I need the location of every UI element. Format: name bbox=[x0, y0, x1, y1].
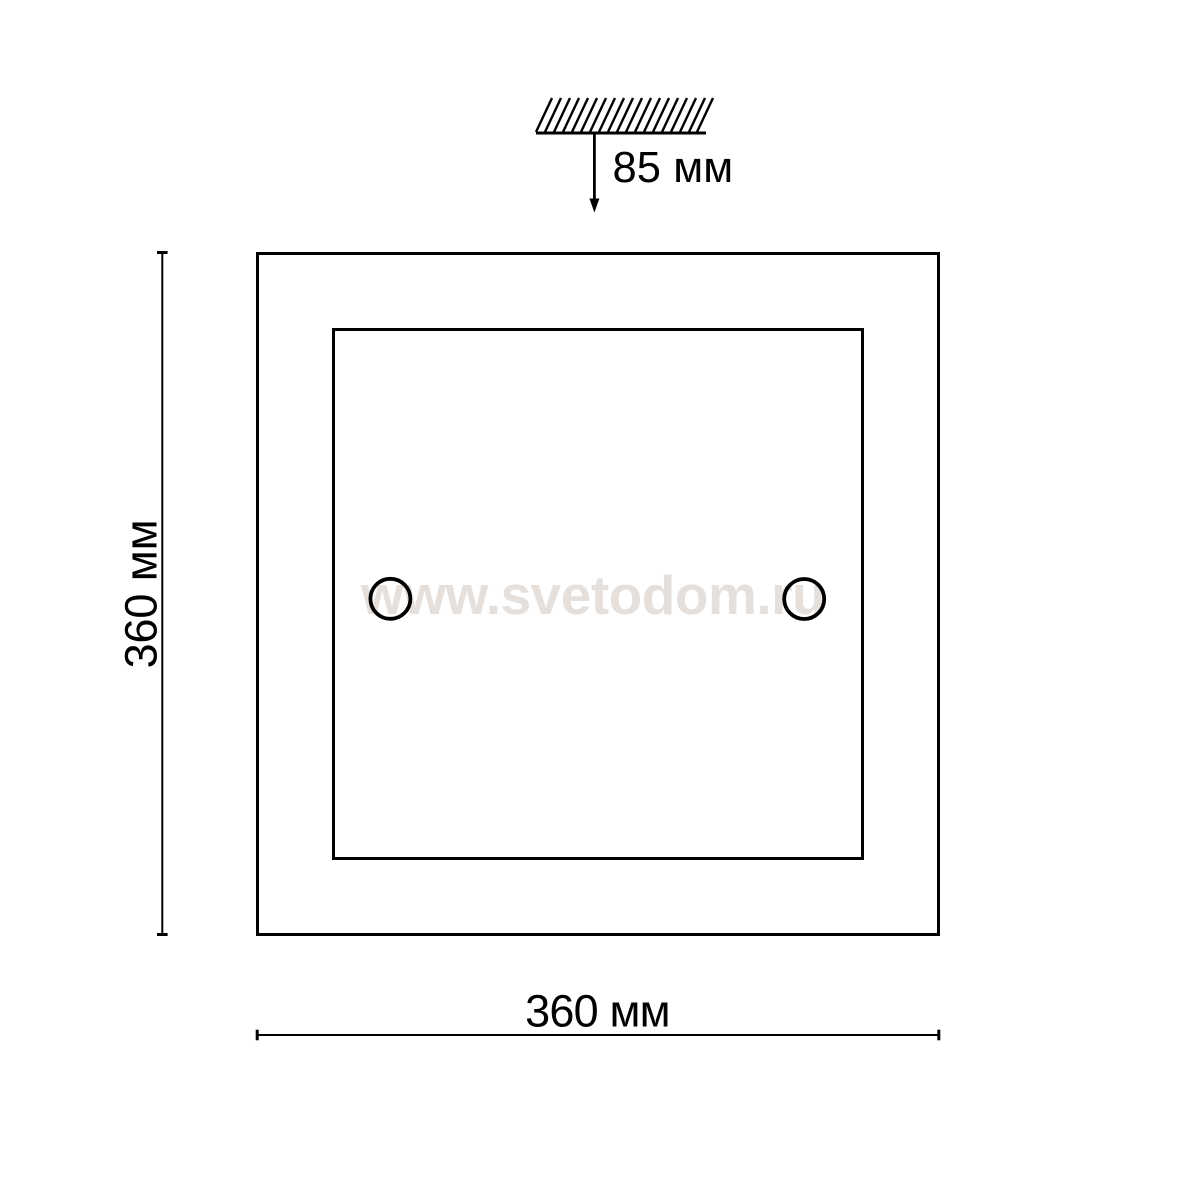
svg-text:www.svetodom.ru: www.svetodom.ru bbox=[360, 564, 825, 626]
svg-text:360 мм: 360 мм bbox=[116, 520, 167, 669]
svg-text:85 мм: 85 мм bbox=[613, 144, 734, 192]
svg-text:360 мм: 360 мм bbox=[525, 986, 670, 1037]
